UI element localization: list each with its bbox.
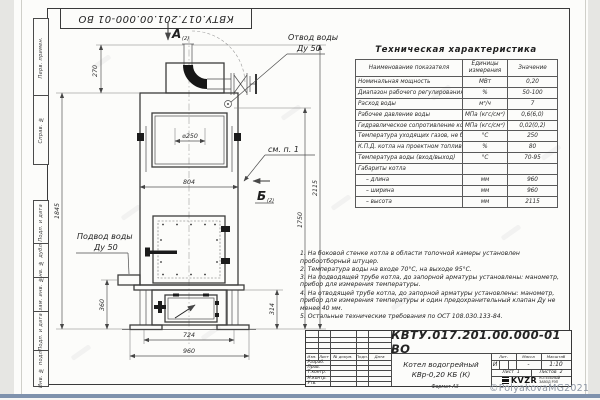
inlet-stub xyxy=(118,275,140,285)
spec-row: Номинальная мощностьМВт0,20 xyxy=(356,77,558,88)
view-a-letter: А xyxy=(171,27,181,41)
spec-unit: мм xyxy=(463,175,508,186)
spec-row: Рабочее давление водыМПа (кгс/см²)0,6(6,… xyxy=(356,109,558,120)
spec-unit: % xyxy=(463,142,508,153)
view-marker-b: Б (2) xyxy=(253,181,274,204)
dim-base-width: 724 xyxy=(183,332,195,339)
staff-utv: Утв. xyxy=(306,381,332,386)
spec-name: Диапазон рабочего регулирования xyxy=(356,87,463,98)
view-a-note: (2) xyxy=(182,36,189,42)
spec-value: 2115 xyxy=(508,196,558,207)
door-hinge-bottom xyxy=(221,258,230,264)
chimney xyxy=(166,44,231,93)
dim-inlet-height: 360 xyxy=(99,299,106,311)
spec-value: 960 xyxy=(508,175,558,186)
spec-value: 0,6(6,0) xyxy=(508,109,558,120)
scale-label: Масштаб xyxy=(541,353,571,360)
title-block: КВТУ.017.201.00.000-01 ВО Изм. Лист № до… xyxy=(305,330,572,387)
spec-unit: МПа (кгс/см²) xyxy=(463,109,508,120)
scale-value: 1:10 xyxy=(541,360,571,369)
spec-value: 80 xyxy=(508,142,558,153)
spec-row: К.П.Д. котла на проектном топливе%80 xyxy=(356,142,558,153)
spec-value: 50-100 xyxy=(508,87,558,98)
spec-row: – ширинамм960 xyxy=(356,185,558,196)
spec-unit: МВт xyxy=(463,77,508,88)
dim-body-height: 1845 xyxy=(54,203,61,219)
spec-name: Температура воды (вход/выход) xyxy=(356,153,463,164)
foot-left xyxy=(130,325,162,330)
view-marker-a: А (2) xyxy=(168,22,189,42)
spec-name: – длина xyxy=(356,175,463,186)
product-line2: КВр-0,20 КБ (К) xyxy=(412,370,471,380)
door-clamp-left xyxy=(137,133,144,141)
spec-name: Габариты котла xyxy=(356,164,463,175)
middle-door xyxy=(145,216,230,283)
spec-unit: МПа (кгс/см²) xyxy=(463,120,508,131)
spec-col-name: Наименование показателя xyxy=(356,60,463,77)
hdr-list: Лист xyxy=(318,353,330,360)
mass-label: Масса xyxy=(516,353,541,360)
spec-row: Гидравлическое сопротивление котлаМПа (к… xyxy=(356,120,558,131)
dim-body-width: 804 xyxy=(183,179,195,186)
note-line: 4. На отводящей трубе котла, до запорной… xyxy=(300,290,560,313)
spec-row: Диапазон рабочего регулирования%50-100 xyxy=(356,87,558,98)
spec-name: Рабочее давление воды xyxy=(356,109,463,120)
spec-unit: °С xyxy=(463,153,508,164)
door-hinge-top xyxy=(221,226,230,232)
inlet-label-line1: Подвод воды xyxy=(77,232,133,241)
sheet-value: 1 xyxy=(517,370,520,375)
inlet-label-line2: Ду 50 xyxy=(93,243,118,252)
outlet-label-line2: Ду 50 xyxy=(296,44,321,53)
door-clamp-right xyxy=(234,133,241,141)
spec-unit: м³/ч xyxy=(463,98,508,109)
foot-right xyxy=(217,325,249,330)
spec-row: – длинамм960 xyxy=(356,175,558,186)
spec-row: Расход водым³/ч7 xyxy=(356,98,558,109)
sheets-cell: Листов 2 xyxy=(531,369,571,376)
copyright-watermark: ©PolyakovaMG2021 xyxy=(489,383,589,394)
hdr-izm: Изм. xyxy=(306,353,318,360)
dim-overall-height: 2115 xyxy=(312,180,319,196)
doc-number: КВТУ.017.201.00.000-01 ВО xyxy=(391,331,571,353)
outlet-label-line1: Отвод воды xyxy=(288,33,338,42)
dim-outlet-height: 1750 xyxy=(297,212,304,228)
spec-value: 0,02(0,2) xyxy=(508,120,558,131)
lit-label: Лит. xyxy=(491,353,516,360)
swing-arc xyxy=(192,31,245,84)
dim-overall-width: 960 xyxy=(183,348,195,355)
hdr-podp: Подп. xyxy=(356,353,368,360)
dim-base-height: 314 xyxy=(269,303,276,315)
note-line: 3. На подводящей трубе котла, до запорно… xyxy=(300,274,560,289)
callouts: Отвод воды Ду 50 Подвод воды Ду 50 см. п… xyxy=(76,33,338,274)
spec-unit: мм xyxy=(463,196,508,207)
format-note: Формат А3 xyxy=(405,385,485,390)
spec-value: 7 xyxy=(508,98,558,109)
spec-name: Расход воды xyxy=(356,98,463,109)
ash-door-arrow xyxy=(175,305,195,318)
note-line: 5. Остальные технические требования по О… xyxy=(300,313,560,321)
spec-name: – высота xyxy=(356,196,463,207)
spec-value: 250 xyxy=(508,131,558,142)
spec-table-title: Техническая характеристика xyxy=(352,45,560,55)
spec-row: Температура воды (вход/выход)°С70-95 xyxy=(356,153,558,164)
spec-table: Наименование показателя Единицы измерени… xyxy=(355,59,558,208)
flue-elbow xyxy=(188,65,207,84)
extension-lines xyxy=(56,45,326,360)
spec-col-units: Единицы измерения xyxy=(463,60,508,77)
hdr-data: Дата xyxy=(368,353,391,360)
ash-door xyxy=(165,295,217,322)
door-handle xyxy=(147,251,177,255)
spec-unit xyxy=(463,164,508,175)
sheet-cell: Лист 1 xyxy=(491,369,531,376)
dim-chimney-height: 270 xyxy=(92,65,99,77)
view-b-letter: Б xyxy=(257,189,266,203)
spec-name: – ширина xyxy=(356,185,463,196)
drawing-sheet-page: Перв. примен. Справ. № Подп. и дата Инв.… xyxy=(0,0,600,400)
see-note-label: см. п. 1 xyxy=(268,145,299,154)
product-line1: Котел водогрейный xyxy=(403,360,478,370)
spec-name: Температура уходящих газов, не более xyxy=(356,131,463,142)
spec-value: 70-95 xyxy=(508,153,558,164)
sheets-label: Листов xyxy=(539,370,556,375)
spec-name: К.П.Д. котла на проектном топливе xyxy=(356,142,463,153)
spec-row: – высотамм2115 xyxy=(356,196,558,207)
sheet-label: Лист xyxy=(502,370,514,375)
note-line: 1. На боковой стенке котла в области топ… xyxy=(300,250,560,265)
dimension-labels: 270 1845 ⌀250 804 360 724 960 314 1750 2… xyxy=(54,65,319,355)
spec-unit: мм xyxy=(463,185,508,196)
spec-value: 0,20 xyxy=(508,77,558,88)
note-line: 2. Температура воды на входе 70°С, на вы… xyxy=(300,266,560,274)
spec-value xyxy=(508,164,558,175)
technical-notes: 1. На боковой стенке котла в области топ… xyxy=(300,250,560,321)
hdr-dok: № докум. xyxy=(330,353,356,360)
dim-flue-diameter: ⌀250 xyxy=(182,133,198,140)
mass-value: - xyxy=(516,360,541,369)
spec-header-row: Наименование показателя Единицы измерени… xyxy=(356,60,558,77)
spec-row: Температура уходящих газов, не более°С25… xyxy=(356,131,558,142)
spec-unit: % xyxy=(463,87,508,98)
lit-value: И xyxy=(491,360,499,369)
spec-unit: °С xyxy=(463,131,508,142)
spec-name: Гидравлическое сопротивление котла xyxy=(356,120,463,131)
spec-name: Номинальная мощность xyxy=(356,77,463,88)
spec-row: Габариты котла xyxy=(356,164,558,175)
product-name: Котел водогрейный КВр-0,20 КБ (К) xyxy=(391,353,491,386)
sheets-value: 2 xyxy=(560,370,563,375)
spec-value: 960 xyxy=(508,185,558,196)
spec-col-value: Значение xyxy=(508,60,558,77)
